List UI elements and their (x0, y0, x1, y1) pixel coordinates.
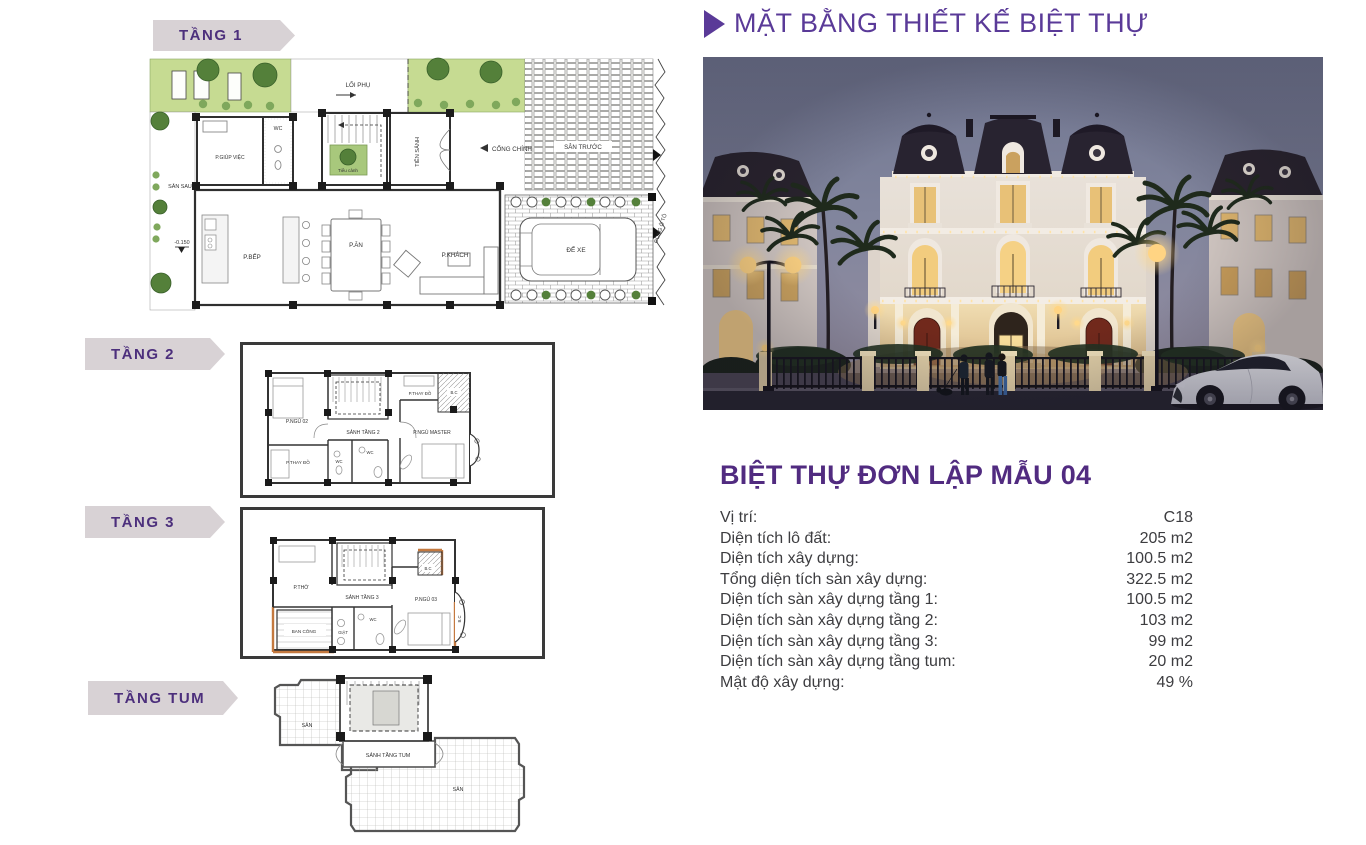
spec-row: Diện tích sàn xây dựng tầng 1:100.5 m2 (720, 590, 1193, 611)
room-label-p-an: P.ĂN (349, 242, 363, 249)
room-label-tien-sanh: TIỀN SẢNH (414, 137, 421, 167)
spec-label: Diện tích xây dựng: (720, 549, 859, 570)
room-label-bc-right: B.C (457, 616, 462, 623)
room-label-de-xe: ĐỂ XE (566, 245, 585, 254)
spec-value: 322.5 m2 (1126, 570, 1193, 591)
floor-banner-tangtum-label: TẦNG TUM (114, 690, 205, 707)
room-label-p-thay-do-top: P.THAY ĐỒ (409, 391, 432, 396)
villa-title: BIỆT THỰ ĐƠN LẬP MẪU 04 (720, 460, 1091, 491)
floor-banner-tang3-label: TẦNG 3 (111, 514, 175, 531)
room-label-wc-left: WC (336, 459, 343, 464)
room-label-tieu-canh: Tiểu cảnh (338, 167, 358, 173)
room-label-ban-cong: BAN CÔNG (292, 628, 317, 634)
spec-value: 205 m2 (1140, 529, 1193, 550)
room-label-p-ngu-02: P.NGỦ 02 (286, 418, 308, 425)
spec-value: 99 m2 (1149, 632, 1193, 653)
spec-label: Diện tích sàn xây dựng tầng 2: (720, 611, 938, 632)
floor-banner-tang1-label: TẦNG 1 (179, 27, 243, 44)
room-label-cong-chinh: CỔNG CHÍNH (492, 146, 532, 153)
spec-table: Vị trí:C18 Diện tích lô đất:205 m2 Diện … (720, 508, 1193, 693)
spec-label: Diện tích sàn xây dựng tầng 3: (720, 632, 938, 653)
spec-label: Tổng diện tích sàn xây dựng: (720, 570, 927, 591)
spec-row: Diện tích xây dựng:100.5 m2 (720, 549, 1193, 570)
room-label-p-giup-viec: P.GIÚP VIỆC (215, 153, 245, 161)
floor-banner-tang3: TẦNG 3 (85, 506, 225, 538)
spec-value: 100.5 m2 (1126, 549, 1193, 570)
floor-plan-tang3: P.THỜ SẢNH TẦNG 3 P.NGỦ 03 BAN CÔNG GIẶT… (240, 507, 545, 659)
floor-banner-tang2-label: TẦNG 2 (111, 346, 175, 363)
room-label-bc-top: B.C (425, 566, 432, 571)
room-label-sanh-tang-3: SẢNH TẦNG 3 (345, 594, 378, 601)
spec-row: Diện tích sàn xây dựng tầng 2:103 m2 (720, 611, 1193, 632)
floor-plan-tang2: P.NGỦ 02 P.THAY ĐỒ SẢNH TẦNG 2 P.NGỦ MAS… (240, 342, 555, 498)
page-title: MẶT BẰNG THIẾT KẾ BIỆT THỰ (734, 8, 1149, 39)
spec-label: Diện tích sàn xây dựng tầng 1: (720, 590, 938, 611)
spec-row: Tổng diện tích sàn xây dựng:322.5 m2 (720, 570, 1193, 591)
spec-row: Diện tích sàn xây dựng tầng tum:20 m2 (720, 652, 1193, 673)
room-label-p-khach: P.KHÁCH (442, 252, 469, 259)
brochure-page: TẦNG 1 TẦNG 2 TẦNG 3 TẦNG TUM (0, 0, 1366, 845)
terrace-label-san-left: SÂN (302, 722, 313, 729)
spec-label: Vị trí: (720, 508, 757, 529)
level-mark: -0.150 (174, 240, 189, 246)
room-label-wc-right: WC (367, 450, 374, 455)
spec-value: C18 (1164, 508, 1193, 529)
spec-row: Diện tích lô đất:205 m2 (720, 529, 1193, 550)
floor-banner-tangtum: TẦNG TUM (88, 681, 238, 715)
room-label-p-tho: P.THỜ (293, 584, 309, 591)
villa-photo (703, 57, 1323, 410)
room-label-wc: WC (274, 126, 283, 132)
room-label-sanh-tang-2: SẢNH TẦNG 2 (346, 429, 379, 436)
spec-row: Vị trí:C18 (720, 508, 1193, 529)
room-label-p-thay-do-bottom: P.THAY ĐỒ (286, 459, 310, 465)
room-label-wc: WC (370, 617, 377, 622)
spec-value: 20 m2 (1149, 652, 1193, 673)
floor-banner-tang1: TẦNG 1 (153, 20, 295, 51)
terrace-label-san-right: SÂN (453, 786, 464, 793)
spec-value: 103 m2 (1140, 611, 1193, 632)
spec-label: Mật độ xây dựng: (720, 673, 845, 694)
room-label-sanh-tang-tum: SẢNH TẦNG TUM (366, 752, 411, 759)
header-arrow-icon (704, 10, 725, 38)
room-label-san-truoc: SÂN TRƯỚC (564, 144, 602, 151)
spec-value: 49 % (1157, 673, 1193, 694)
room-label-giat: GIẶT (338, 630, 348, 635)
spec-row: Diện tích sàn xây dựng tầng 3:99 m2 (720, 632, 1193, 653)
floor-plan-tangtum: SÂN SẢNH TẦNG TUM SÂN (255, 673, 545, 840)
room-label-bc: B.C (451, 390, 458, 395)
spec-value: 100.5 m2 (1126, 590, 1193, 611)
room-label-p-ngu-master: P.NGỦ MASTER (413, 429, 451, 436)
floor-plan-tang1: LỐI PHỤ SÂN TRƯỚC CỔNG CHÍNH TIỀN SẢNH T… (148, 57, 668, 312)
floor-banner-tang2: TẦNG 2 (85, 338, 225, 370)
room-label-p-ngu-03: P.NGỦ 03 (415, 596, 437, 603)
spec-label: Diện tích lô đất: (720, 529, 831, 550)
room-label-loi-phu: LỐI PHỤ (346, 82, 371, 89)
spec-label: Diện tích sàn xây dựng tầng tum: (720, 652, 956, 673)
room-label-san-sau: SÂN SAU (168, 183, 192, 190)
room-label-p-bep: P.BẾP (243, 254, 260, 261)
spec-row: Mật độ xây dựng:49 % (720, 673, 1193, 694)
